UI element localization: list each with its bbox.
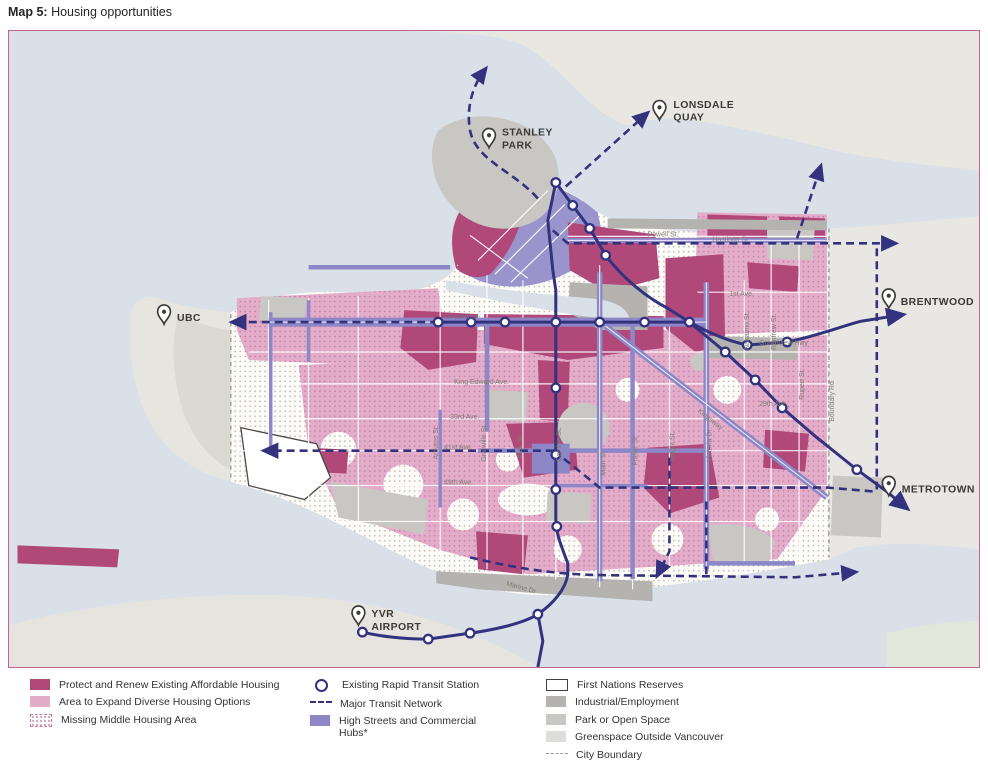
street-label: Broadway: [446, 314, 478, 321]
landmark-label: YVR: [371, 609, 394, 620]
map-canvas: Powell St. Hastings St. 1st Ave. Broadwa…: [8, 30, 980, 668]
legend-label: High Streets and Commercial Hubs*: [339, 715, 499, 740]
street-label: 33rd Ave.: [450, 414, 479, 421]
street-label: Main St.: [601, 450, 608, 476]
landmark-label: METROTOWN: [902, 485, 975, 496]
map-legend: Protect and Renew Existing Affordable Ho…: [0, 676, 988, 764]
street-label: Fraser St.: [633, 435, 640, 466]
landmark-label: STANLEY: [502, 128, 553, 139]
street-label: Rupert St.: [799, 368, 806, 399]
landmark-label: UBC: [177, 313, 201, 324]
page-title-prefix: Map 5:: [8, 5, 48, 19]
page-title: Map 5: Housing opportunities: [8, 5, 172, 19]
landmark-label: QUAY: [673, 113, 704, 124]
legend-item-missing-middle: Missing Middle Housing Area: [30, 713, 300, 727]
expand-diverse-swatch: [30, 696, 50, 707]
legend-item-park: Park or Open Space: [546, 713, 786, 726]
legend-label: Major Transit Network: [340, 697, 442, 710]
legend-item-expand-diverse: Area to Expand Diverse Housing Options: [30, 696, 300, 709]
street-label: Cambie St.: [556, 427, 563, 462]
protect-renew-swatch: [30, 679, 50, 690]
legend-item-high-streets: High Streets and Commercial Hubs*: [310, 715, 530, 740]
legend-label: Area to Expand Diverse Housing Options: [59, 696, 250, 709]
legend-label: City Boundary: [576, 748, 642, 761]
legend-item-industrial: Industrial/Employment: [546, 696, 786, 709]
housing-map-svg: Powell St. Hastings St. 1st Ave. Broadwa…: [9, 31, 979, 667]
legend-item-city-boundary: City Boundary: [546, 748, 786, 761]
legend-item-major-transit: Major Transit Network: [310, 697, 530, 710]
page-title-text: Housing opportunities: [51, 5, 172, 19]
street-label: Oak St.: [517, 434, 524, 457]
legend-housing-column: Protect and Renew Existing Affordable Ho…: [30, 678, 300, 732]
landmark-label: PARK: [502, 141, 532, 152]
street-label: Renfrew St.: [771, 314, 778, 350]
street-label: Powell St.: [648, 231, 679, 238]
legend-label: Greenspace Outside Vancouver: [575, 731, 724, 744]
legend-label: Industrial/Employment: [575, 696, 679, 709]
high-streets-swatch: [310, 715, 330, 726]
street-label: King Edward Ave.: [454, 379, 509, 386]
park-swatch: [546, 714, 566, 725]
street-label: Boundary Rd.: [829, 379, 836, 422]
first-nations-swatch: [546, 679, 568, 691]
landmark-label: LONSDALE: [673, 100, 734, 111]
legend-transit-column: Existing Rapid Transit Station Major Tra…: [310, 678, 530, 744]
street-label: 29th Ave.: [759, 401, 788, 408]
street-label: Nanaimo St.: [744, 312, 751, 350]
missing-middle-swatch: [30, 714, 52, 727]
street-label: Victoria Dr.: [706, 428, 713, 462]
station-icon: [315, 679, 328, 692]
landmark-label: AIRPORT: [371, 622, 421, 633]
legend-label: Existing Rapid Transit Station: [342, 678, 479, 691]
legend-label: Park or Open Space: [575, 713, 670, 726]
greenspace-swatch: [546, 731, 566, 742]
street-label: Hastings St.: [712, 236, 750, 243]
street-label: Grandview Hwy: [759, 340, 808, 347]
street-label: 1st Ave.: [729, 291, 754, 298]
street-label: Granville St.: [481, 424, 488, 462]
legend-item-protect-renew: Protect and Renew Existing Affordable Ho…: [30, 678, 300, 691]
legend-item-first-nations: First Nations Reserves: [546, 678, 786, 691]
street-label: 49th Ave.: [444, 480, 473, 487]
street-label: Knight St.: [669, 431, 676, 461]
industrial-swatch: [546, 696, 566, 707]
legend-item-station: Existing Rapid Transit Station: [310, 678, 530, 692]
street-label: Arbutus St.: [433, 425, 440, 460]
legend-label: Protect and Renew Existing Affordable Ho…: [59, 678, 279, 691]
city-boundary-icon: [546, 753, 568, 754]
legend-item-greenspace: Greenspace Outside Vancouver: [546, 731, 786, 744]
landmark-label: BRENTWOOD: [901, 297, 974, 308]
legend-label: First Nations Reserves: [577, 678, 683, 691]
legend-land-column: First Nations Reserves Industrial/Employ…: [546, 678, 786, 766]
dashed-line-icon: [310, 701, 332, 703]
street-label: 41st Ave.: [444, 445, 473, 452]
legend-label: Missing Middle Housing Area: [61, 713, 196, 726]
